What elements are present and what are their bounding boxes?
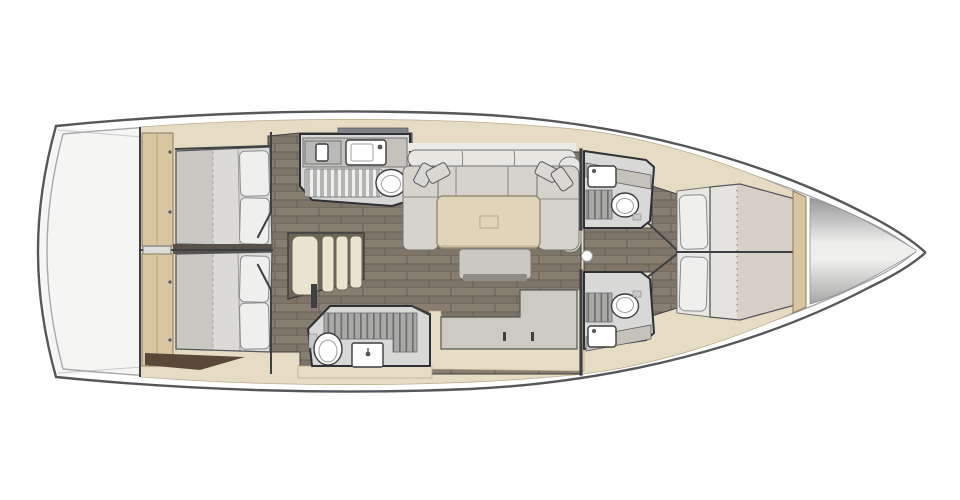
double-bed-bottom — [176, 252, 272, 352]
head-fwd-bottom-toilet-hinge — [633, 291, 641, 297]
head-bottom — [308, 306, 430, 367]
head-bottom-toilet — [314, 333, 342, 365]
wardrobe-bottom-handle — [168, 280, 171, 283]
galley-drawer-handle — [531, 332, 534, 341]
wardrobe-top-handle — [168, 150, 171, 153]
stern-lazarette — [40, 127, 140, 376]
head-fwd-bottom-shower-grate — [586, 293, 612, 322]
head-bottom-cabinet-strip — [298, 366, 432, 378]
head-fwd-top-toilet-hinge — [633, 214, 641, 220]
head-forward-top — [584, 151, 654, 228]
galley-drawer-handle — [503, 332, 506, 341]
bed-bottom-pillow — [239, 303, 269, 350]
head-forward-bottom — [584, 272, 654, 351]
head-fwd-top-sink — [588, 166, 616, 187]
head-top-cistern — [316, 144, 328, 161]
head-top-shower-grate — [305, 169, 382, 197]
head-fwd-bottom-sink — [588, 326, 616, 347]
step-4 — [350, 236, 362, 288]
bow-bulkhead — [793, 191, 806, 313]
step-3 — [336, 236, 348, 290]
wardrobe-bottom-handle — [168, 338, 171, 341]
head-fwd-bottom-faucet-icon — [592, 329, 596, 333]
mast-compression-post — [582, 251, 593, 262]
head-fwd-top-faucet-icon — [592, 169, 596, 173]
bed-top-pillow — [239, 151, 269, 197]
aft-cabin-top — [142, 133, 272, 246]
bed-bottom-duvet — [176, 254, 213, 350]
head-fwd-top-shower-grate — [586, 190, 612, 219]
ottoman — [459, 249, 531, 281]
bed-top-pillow — [239, 198, 269, 245]
head-top-faucet-icon — [378, 145, 383, 150]
head-bottom-shower-grate-step — [393, 313, 417, 352]
settee-backrest — [408, 150, 576, 167]
step-2 — [322, 236, 334, 292]
bed-top-duvet — [176, 150, 213, 245]
steps-support-post — [311, 284, 317, 308]
fwd-bed-pillow — [679, 195, 708, 250]
ottoman-base — [463, 274, 527, 281]
yacht-floorplan — [0, 0, 960, 500]
yacht-floorplan-canvas — [0, 0, 960, 500]
double-bed-top — [176, 147, 272, 246]
fwd-bed-pillow — [679, 257, 708, 312]
wardrobe-top-handle — [168, 210, 171, 213]
saloon-table — [437, 196, 540, 248]
